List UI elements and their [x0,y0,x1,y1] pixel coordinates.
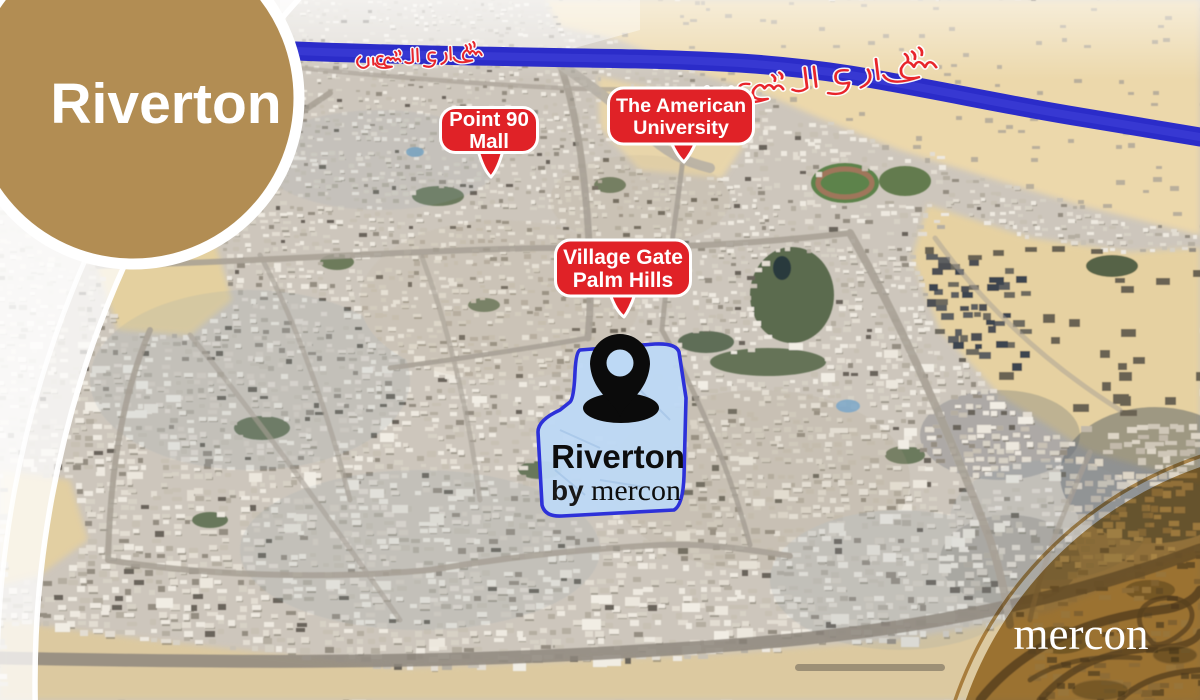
svg-text:mercon: mercon [1014,609,1149,659]
svg-text:Village Gate: Village Gate [563,246,683,269]
svg-text:Point 90: Point 90 [449,108,529,131]
svg-text:University: University [633,117,729,139]
svg-text:mercon: mercon [591,474,681,507]
svg-text:by: by [551,475,584,506]
svg-text:Riverton: Riverton [551,438,685,475]
svg-text:Mall: Mall [469,130,509,153]
svg-text:Palm Hills: Palm Hills [573,269,673,292]
svg-text:The American: The American [616,95,746,117]
svg-text:Riverton: Riverton [50,72,281,136]
